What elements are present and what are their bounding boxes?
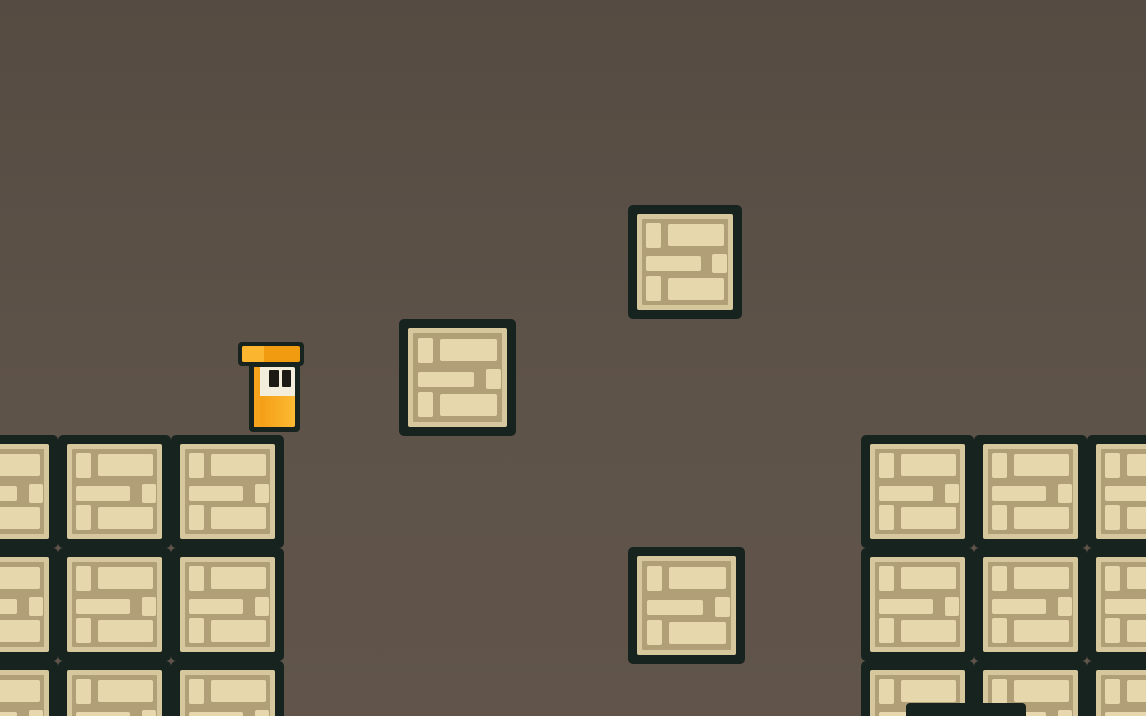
foreground-layer: [0, 0, 1146, 716]
platform-opening: [906, 703, 1026, 716]
game-viewport[interactable]: [0, 0, 1146, 716]
